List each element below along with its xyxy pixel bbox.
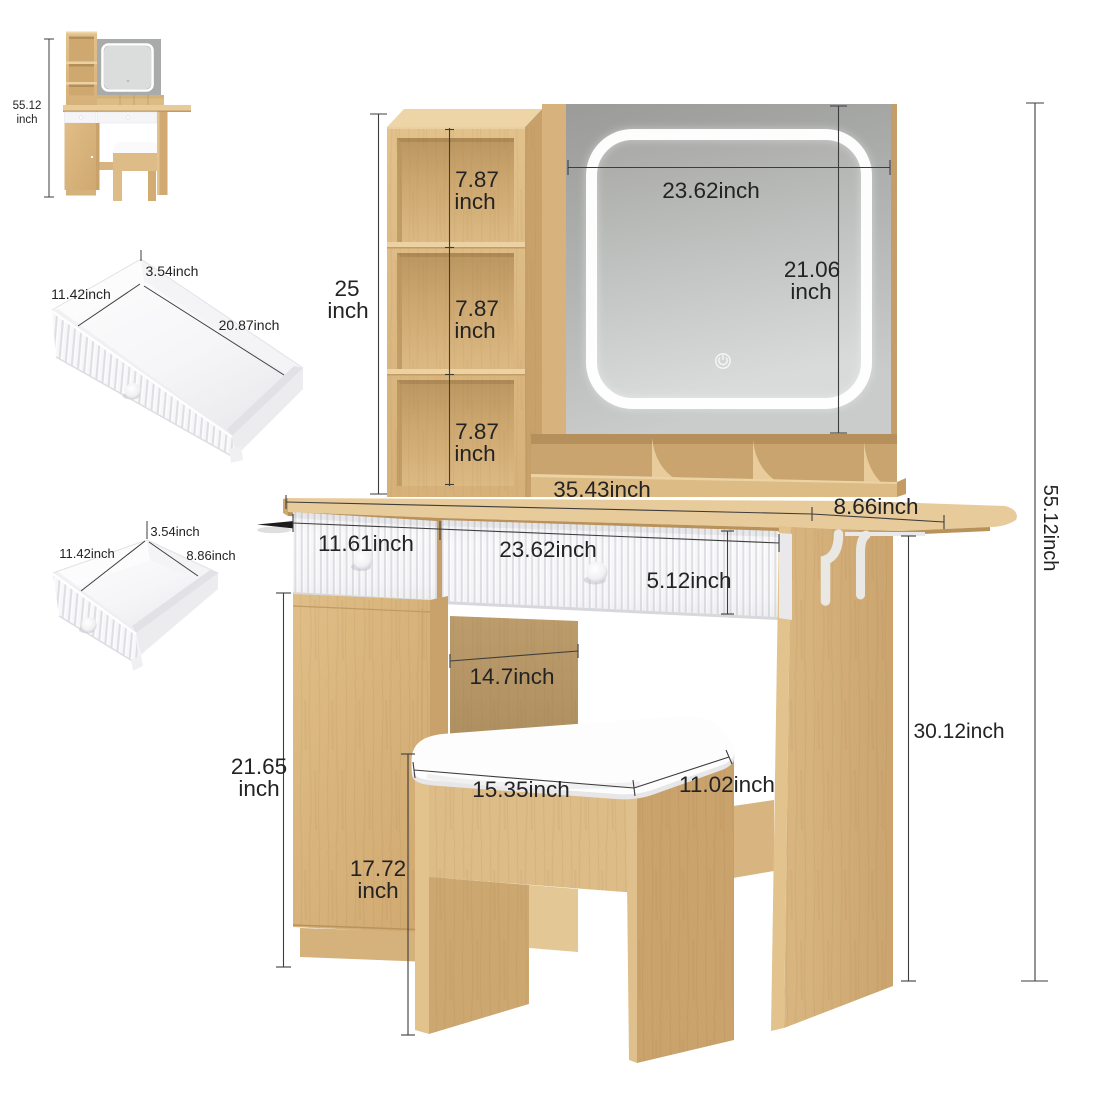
svg-text:11.42inch: 11.42inch	[59, 546, 114, 561]
svg-text:23.62inch: 23.62inch	[499, 537, 597, 562]
svg-text:30.12inch: 30.12inch	[913, 720, 1004, 743]
svg-text:3.54inch: 3.54inch	[150, 524, 199, 539]
svg-text:14.7inch: 14.7inch	[469, 664, 554, 689]
svg-text:55.12: 55.12	[13, 100, 42, 112]
svg-text:11.61inch: 11.61inch	[318, 531, 414, 556]
svg-text:55.12inch: 55.12inch	[1039, 485, 1061, 572]
svg-text:inch: inch	[16, 114, 37, 126]
svg-text:8.66inch: 8.66inch	[833, 494, 918, 519]
svg-text:8.86inch: 8.86inch	[186, 548, 235, 563]
svg-text:inch: inch	[238, 776, 279, 801]
svg-text:23.62inch: 23.62inch	[662, 178, 760, 203]
svg-text:11.02inch: 11.02inch	[679, 772, 775, 797]
svg-text:inch: inch	[790, 279, 831, 304]
svg-text:35.43inch: 35.43inch	[553, 477, 651, 502]
svg-text:inch: inch	[454, 189, 495, 214]
svg-text:11.42inch: 11.42inch	[51, 286, 111, 302]
svg-text:20.87inch: 20.87inch	[219, 317, 280, 333]
svg-text:inch: inch	[454, 318, 495, 343]
svg-text:3.54inch: 3.54inch	[146, 263, 199, 279]
svg-text:inch: inch	[327, 298, 368, 323]
svg-text:15.35inch: 15.35inch	[472, 777, 570, 802]
svg-text:inch: inch	[454, 441, 495, 466]
svg-text:5.12inch: 5.12inch	[646, 568, 731, 593]
svg-text:inch: inch	[357, 878, 398, 903]
